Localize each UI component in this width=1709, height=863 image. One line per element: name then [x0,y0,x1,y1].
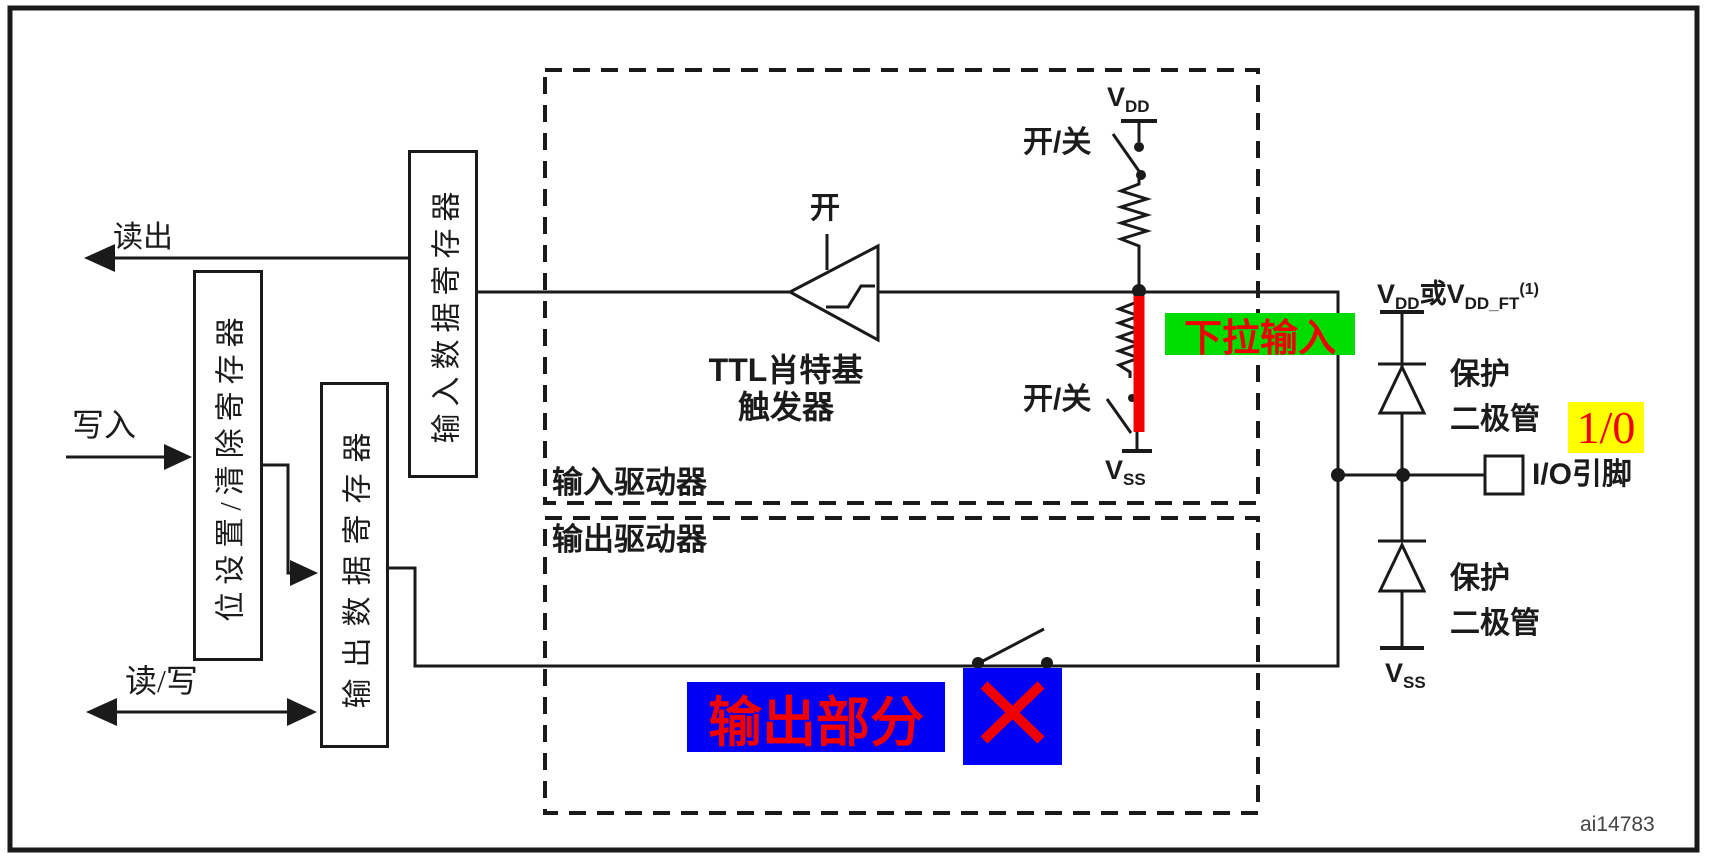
upper-protection-diode-icon [1380,367,1424,413]
read-out-arrowhead [84,244,115,272]
one-zero-annotation: 1/0 [1568,402,1644,453]
pin-junction-dot-left [1331,468,1345,482]
pullup-contact-dot-top [1134,142,1144,152]
output-driver-label: 输出驱动器 [549,522,710,558]
x-mark-box [963,668,1062,765]
schmitt-on-label: 开 [810,192,840,227]
gpio-structure-diagram: 读出 写入 读/写 输入数据寄存器 位设置/清除寄存器 输出数据寄存器 输入驱动… [0,0,1709,863]
pulldown-on-off-label: 开/关 [1023,383,1091,418]
write-label: 写入 [72,408,136,443]
pullup-contact-dot-bottom [1136,170,1146,180]
schmitt-name-line2: 触发器 [661,389,911,426]
bit-set-clear-register-label: 位设置/清除寄存器 [206,310,250,621]
x-mark-icon [963,668,1062,765]
read-write-arrowhead-left [86,698,117,726]
pull-down-input-annotation: 下拉输入 [1165,313,1355,355]
pullup-lever [1113,134,1141,174]
io-pin-label: I/O引脚 [1532,458,1632,493]
figure-id: ai14783 [1580,813,1655,837]
schmitt-name-label: TTL肖特基 触发器 [661,352,911,426]
output-section-annotation: 输出部分 [687,682,945,752]
protection-diode-top-label: 保护 二极管 [1450,352,1540,442]
pulldown-lever [1107,399,1131,433]
output-data-register-box: 输出数据寄存器 [320,382,389,748]
vdd-label: VDD [1107,82,1150,117]
lower-protection-diode-icon [1380,545,1424,591]
pulldown-vss-label: VSS [1105,455,1146,490]
output-data-register-label: 输出数据寄存器 [333,422,377,709]
vdd-ft-label: VDD或VDD_FT(1) [1377,272,1539,314]
output-switch-lever [981,629,1044,662]
input-data-register-box: 输入数据寄存器 [408,150,478,478]
set-clear-arrowhead [290,560,318,586]
read-write-arrowhead-right [287,698,317,726]
read-write-label: 读/写 [125,664,198,699]
input-driver-dashed-box [545,70,1258,503]
bit-set-clear-register-box: 位设置/清除寄存器 [193,270,263,661]
input-data-register-label: 输入数据寄存器 [421,185,465,444]
pullup-on-off-label: 开/关 [1023,126,1091,161]
input-driver-label: 输入驱动器 [549,465,710,501]
output-signal-line [383,477,1338,666]
pullup-resistor [1121,178,1147,291]
read-out-label: 读出 [113,221,173,254]
io-pin-square [1485,456,1523,494]
pin-junction-dot-right [1396,468,1410,482]
write-arrowhead [164,444,192,470]
protection-diode-bottom-label: 保护 二极管 [1450,556,1540,646]
input-junction-dot [1132,284,1146,298]
protection-vss-label: VSS [1385,658,1426,693]
schmitt-name-line1: TTL肖特基 [661,352,911,389]
schmitt-triangle [790,246,878,340]
